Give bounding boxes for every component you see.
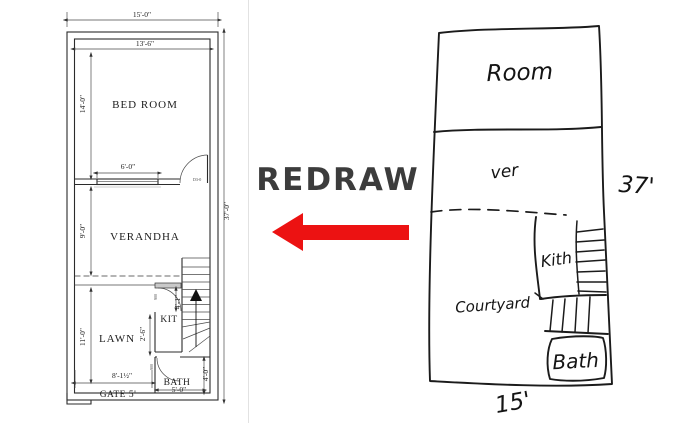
dim-bath-height: 4'-0" [201, 367, 210, 381]
sketch-ver-divider-dashed [431, 209, 566, 215]
dim-bath-width: 5'-0" [172, 385, 186, 394]
redraw-annotation: REDRAW [256, 162, 419, 251]
sketch-height-dim: 37' [618, 172, 655, 200]
bedroom-door-tag: D3-0 [193, 177, 201, 182]
staircase [182, 258, 210, 352]
gate-notch [67, 393, 91, 404]
sketch-bath-label: Bath [552, 348, 600, 374]
dim-bedroom-height: 14'-0" [78, 95, 87, 113]
redraw-label: REDRAW [256, 162, 419, 198]
sketch-ver-label: ver [490, 161, 520, 184]
sketch-stairs-horizontal [535, 293, 608, 334]
dim-lawn-width: 8'-1½" [112, 371, 132, 380]
stairs-up-arrow [190, 289, 202, 301]
floorplan-composite: D3-0 900 [0, 0, 680, 423]
dim-kitchen-height: 4'-1" [173, 295, 182, 309]
bath-door-tag: 900 [149, 364, 154, 370]
kitchen-window [155, 283, 181, 288]
outer-wall [67, 32, 218, 400]
cad-floor-plan: D3-0 900 [67, 10, 231, 404]
dim-inner-width: 13'-6" [136, 39, 154, 48]
sketch-width-dim: 15' [493, 387, 533, 419]
sketch-ladder-vertical [576, 221, 606, 294]
lawn-label: LAWN [99, 333, 135, 345]
dim-verandah-height: 9'-0" [78, 224, 87, 238]
sketch-kith-wall [535, 217, 540, 299]
dim-lawn-height: 11'-0" [78, 328, 87, 346]
redraw-arrow-left-icon [272, 213, 409, 251]
hand-sketch: Room ver 37' Kith Courtyard Bath 15' [429, 26, 655, 419]
kitchen-label: KIT [160, 315, 177, 325]
verandah-label: VERANDHA [110, 231, 180, 243]
screenshot-canvas: D3-0 900 [0, 0, 680, 423]
bedroom-label: BED ROOM [112, 99, 178, 111]
dim-overall-height: 37'-0" [222, 202, 231, 220]
bedroom-verandah-wall: D3-0 [75, 155, 208, 187]
dimension-annotations: 15'-0" 13'-6" 14'-0" 6'-0" 37'-0" 9'-0" … [67, 10, 231, 400]
sketch-room-divider [434, 127, 601, 132]
sketch-courtyard-label: Courtyard [455, 293, 532, 316]
kitchen-door-tag: 900 [153, 294, 158, 300]
gate-label: GATE 5' [100, 390, 137, 400]
dim-window-width: 6'-0" [121, 162, 135, 171]
dim-overall-width: 15'-0" [133, 10, 151, 19]
dim-kitchen-width: 2'-6" [138, 327, 147, 341]
sketch-kith-label: Kith [539, 248, 573, 271]
sketch-room-label: Room [486, 59, 553, 87]
